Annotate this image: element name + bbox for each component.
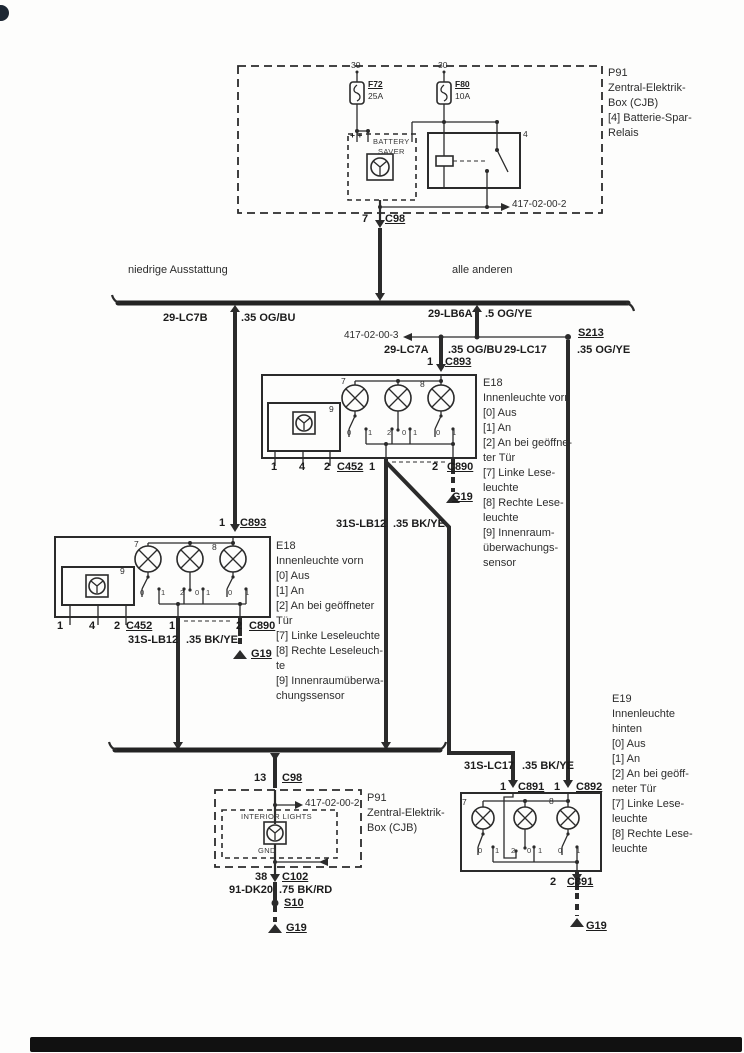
wire-91-dk20-gauge: .75 BK/RD <box>279 884 332 896</box>
labels: 30F7225A30F8010A+ +BATTERYSAVER4417-02-0… <box>0 0 744 1053</box>
e18-right-legend-line: Innenleuchte vorn <box>483 391 572 406</box>
e18-right-legend: E18Innenleuchte vorn[0] Aus[1] An[2] An … <box>483 376 572 571</box>
wire-91-dk20: 91-DK20 <box>229 884 273 896</box>
e19-legend-line: [7] Linke Lese- <box>612 797 693 812</box>
wire-29-lb6a: 29-LB6A <box>428 308 473 320</box>
e19-legend-line: [0] Aus <box>612 737 693 752</box>
fuse-f80-pin30: 30 <box>438 61 447 70</box>
branch-left-label: niedrige Ausstattung <box>128 264 228 276</box>
switch-terminal: 0 <box>436 429 441 437</box>
e19-legend: E19Innenleuchtehinten[0] Aus[1] An[2] An… <box>612 692 693 857</box>
switch-terminal: 0 <box>347 429 352 437</box>
pin-number: 2 <box>550 876 556 888</box>
e18-right-legend-line: leuchte <box>483 481 572 496</box>
pin-number: 4 <box>299 461 305 473</box>
battery-saver-title-2: SAVER <box>378 148 405 156</box>
p91-bottom-legend-line: Zentral-Elektrik- <box>367 806 445 821</box>
e18-right-legend-line: E18 <box>483 376 572 391</box>
p91-top-legend-line: Zentral-Elektrik- <box>608 81 692 96</box>
switch-terminal: 0 <box>140 589 145 597</box>
switch-terminal: 2 <box>180 589 185 597</box>
switch-terminal: 0 <box>478 847 483 855</box>
lamp-8-number: 8 <box>420 380 425 389</box>
p91-top-legend-line: [4] Batterie-Spar- <box>608 111 692 126</box>
switch-terminal: 1 <box>245 589 250 597</box>
e18-left-legend-line: Innenleuchte vorn <box>276 554 384 569</box>
switch-terminal: 1 <box>576 847 581 855</box>
wire-31s-lc17: 31S-LC17 <box>464 760 514 772</box>
switch-terminal: 1 <box>452 429 457 437</box>
pin-number: 4 <box>89 620 95 632</box>
ground-g19: G19 <box>586 920 607 932</box>
pin-number: 1 <box>57 620 63 632</box>
fuse-f72-pin30: 30 <box>351 61 360 70</box>
c891-id: C891 <box>518 781 544 793</box>
p91-bottom-legend-line: Box (CJB) <box>367 821 445 836</box>
ground-g19: G19 <box>251 648 272 660</box>
e18-left-legend: E18Innenleuchte vorn[0] Aus[1] An[2] An … <box>276 539 384 704</box>
interior-lights-title: INTERIOR LIGHTS <box>241 813 312 821</box>
e18-left-legend-line: [1] An <box>276 584 384 599</box>
wiring-diagram-page: 30F7225A30F8010A+ +BATTERYSAVER4417-02-0… <box>0 0 744 1053</box>
wire-31s-lb12: 31S-LB12 <box>128 634 178 646</box>
wire-29-lc17-gauge: .35 OG/YE <box>577 344 630 356</box>
ref-417-02-00-2-top: 417-02-00-2 <box>512 199 566 211</box>
c98-pin-7: 7 <box>362 213 368 225</box>
p91-top-legend: P91Zentral-Elektrik-Box (CJB)[4] Batteri… <box>608 66 692 141</box>
e18-left-legend-line: [7] Linke Leseleuchte <box>276 629 384 644</box>
switch-terminal: 1 <box>368 429 373 437</box>
fuse-f80-rating: 10A <box>455 92 470 101</box>
switch-terminal: 1 <box>413 429 418 437</box>
switch-terminal: 0 <box>558 847 563 855</box>
e18-right-legend-line: [2] An bei geöffne- <box>483 436 572 451</box>
e18-right-legend-line: sensor <box>483 556 572 571</box>
e18-right-legend-line: ter Tür <box>483 451 572 466</box>
lamp-8-number: 8 <box>212 543 217 552</box>
c890-id: C890 <box>249 620 275 632</box>
wire-29-lc7a-gauge: .35 OG/BU <box>448 344 502 356</box>
switch-terminal: 0 <box>402 429 407 437</box>
e18-right-legend-line: [0] Aus <box>483 406 572 421</box>
relay-pin-4: 4 <box>523 130 528 139</box>
lamp-7-number: 7 <box>462 798 467 807</box>
e18-left-legend-line: te <box>276 659 384 674</box>
e19-legend-line: hinten <box>612 722 693 737</box>
p91-bottom-legend: P91Zentral-Elektrik-Box (CJB) <box>367 791 445 836</box>
battery-saver-plus-marks: + + <box>350 131 362 140</box>
pin-number: 2 <box>432 461 438 473</box>
fuse-f80-id: F80 <box>455 80 470 89</box>
ground-g19: G19 <box>452 491 473 503</box>
c452-id: C452 <box>337 461 363 473</box>
fuse-f72-rating: 25A <box>368 92 383 101</box>
p91-bottom-legend-line: P91 <box>367 791 445 806</box>
e18-right-legend-line: überwachungs- <box>483 541 572 556</box>
switch-terminal: 1 <box>206 589 211 597</box>
c893-pin-1: 1 <box>427 356 433 368</box>
e19-legend-line: [8] Rechte Lese- <box>612 827 693 842</box>
e18-left-legend-line: [8] Rechte Leseleuch- <box>276 644 384 659</box>
c891-pin-1: 1 <box>500 781 506 793</box>
switch-terminal: 1 <box>538 847 543 855</box>
c98-pin-13: 13 <box>254 772 266 784</box>
wire-29-lb6a-gauge: .5 OG/YE <box>485 308 532 320</box>
switch-terminal: 2 <box>387 429 392 437</box>
wire-29-lc7b-gauge: .35 OG/BU <box>241 312 295 324</box>
splice-s213: S213 <box>578 327 604 339</box>
p91-top-legend-line: Box (CJB) <box>608 96 692 111</box>
c102-id: C102 <box>282 871 308 883</box>
c893-pin-1: 1 <box>219 517 225 529</box>
e19-legend-line: leuchte <box>612 812 693 827</box>
c98-id: C98 <box>282 772 302 784</box>
c892-pin-1: 1 <box>554 781 560 793</box>
e19-legend-line: Innenleuchte <box>612 707 693 722</box>
c893-id: C893 <box>445 356 471 368</box>
e18-right-legend-line: [8] Rechte Lese- <box>483 496 572 511</box>
switch-terminal: 1 <box>495 847 500 855</box>
pin-number: 1 <box>169 620 175 632</box>
e19-legend-line: leuchte <box>612 842 693 857</box>
e18-right-legend-line: leuchte <box>483 511 572 526</box>
e18-left-legend-line: [2] An bei geöffneter <box>276 599 384 614</box>
sensor-9-number: 9 <box>120 567 125 576</box>
c891-id-bottom: C891 <box>567 876 593 888</box>
switch-terminal: 0 <box>527 847 532 855</box>
e18-left-legend-line: [0] Aus <box>276 569 384 584</box>
e18-right-legend-line: [9] Innenraum- <box>483 526 572 541</box>
e19-legend-line: E19 <box>612 692 693 707</box>
ref-417-02-00-2-bottom: 417-02-00-2 <box>305 798 359 810</box>
ground-g19: G19 <box>286 922 307 934</box>
branch-right-label: alle anderen <box>452 264 513 276</box>
e19-legend-line: neter Tür <box>612 782 693 797</box>
c452-id: C452 <box>126 620 152 632</box>
switch-terminal: 1 <box>161 589 166 597</box>
lamp-7-number: 7 <box>341 377 346 386</box>
wire-29-lc17: 29-LC17 <box>504 344 547 356</box>
e18-right-legend-line: [1] An <box>483 421 572 436</box>
pin-number: 2 <box>324 461 330 473</box>
wire-31s-lb12-gauge: .35 BK/YE <box>393 518 445 530</box>
e19-legend-line: [2] An bei geöff- <box>612 767 693 782</box>
c892-id: C892 <box>576 781 602 793</box>
ref-417-02-00-3: 417-02-00-3 <box>344 330 398 342</box>
e18-left-legend-line: E18 <box>276 539 384 554</box>
lamp-7-number: 7 <box>134 540 139 549</box>
battery-saver-title-1: BATTERY <box>373 138 410 146</box>
pin-number: 1 <box>369 461 375 473</box>
lamp-8-number: 8 <box>549 797 554 806</box>
switch-terminal: 2 <box>511 847 516 855</box>
wire-29-lc7b: 29-LC7B <box>163 312 208 324</box>
switch-terminal: 0 <box>195 589 200 597</box>
sensor-9-number: 9 <box>329 405 334 414</box>
wire-31s-lb12-gauge: .35 BK/YE <box>186 634 238 646</box>
gnd-label: GND <box>258 847 276 855</box>
pin-number: 2 <box>114 620 120 632</box>
pin-number: 2 <box>236 620 242 632</box>
pin-number: 1 <box>271 461 277 473</box>
c98-id: C98 <box>385 213 405 225</box>
fuse-f72-id: F72 <box>368 80 383 89</box>
wire-31s-lb12: 31S-LB12 <box>336 518 386 530</box>
e18-left-legend-line: [9] Innenraumüberwa- <box>276 674 384 689</box>
e18-left-legend-line: chungssensor <box>276 689 384 704</box>
p91-top-legend-line: Relais <box>608 126 692 141</box>
wire-29-lc7a: 29-LC7A <box>384 344 429 356</box>
e18-left-legend-line: Tür <box>276 614 384 629</box>
p91-top-legend-line: P91 <box>608 66 692 81</box>
e19-legend-line: [1] An <box>612 752 693 767</box>
splice-s10: S10 <box>284 897 304 909</box>
e18-right-legend-line: [7] Linke Lese- <box>483 466 572 481</box>
c890-id: C890 <box>447 461 473 473</box>
switch-terminal: 0 <box>228 589 233 597</box>
wire-31s-lc17-gauge: .35 BK/YE <box>522 760 574 772</box>
c102-pin-38: 38 <box>255 871 267 883</box>
c893-id: C893 <box>240 517 266 529</box>
